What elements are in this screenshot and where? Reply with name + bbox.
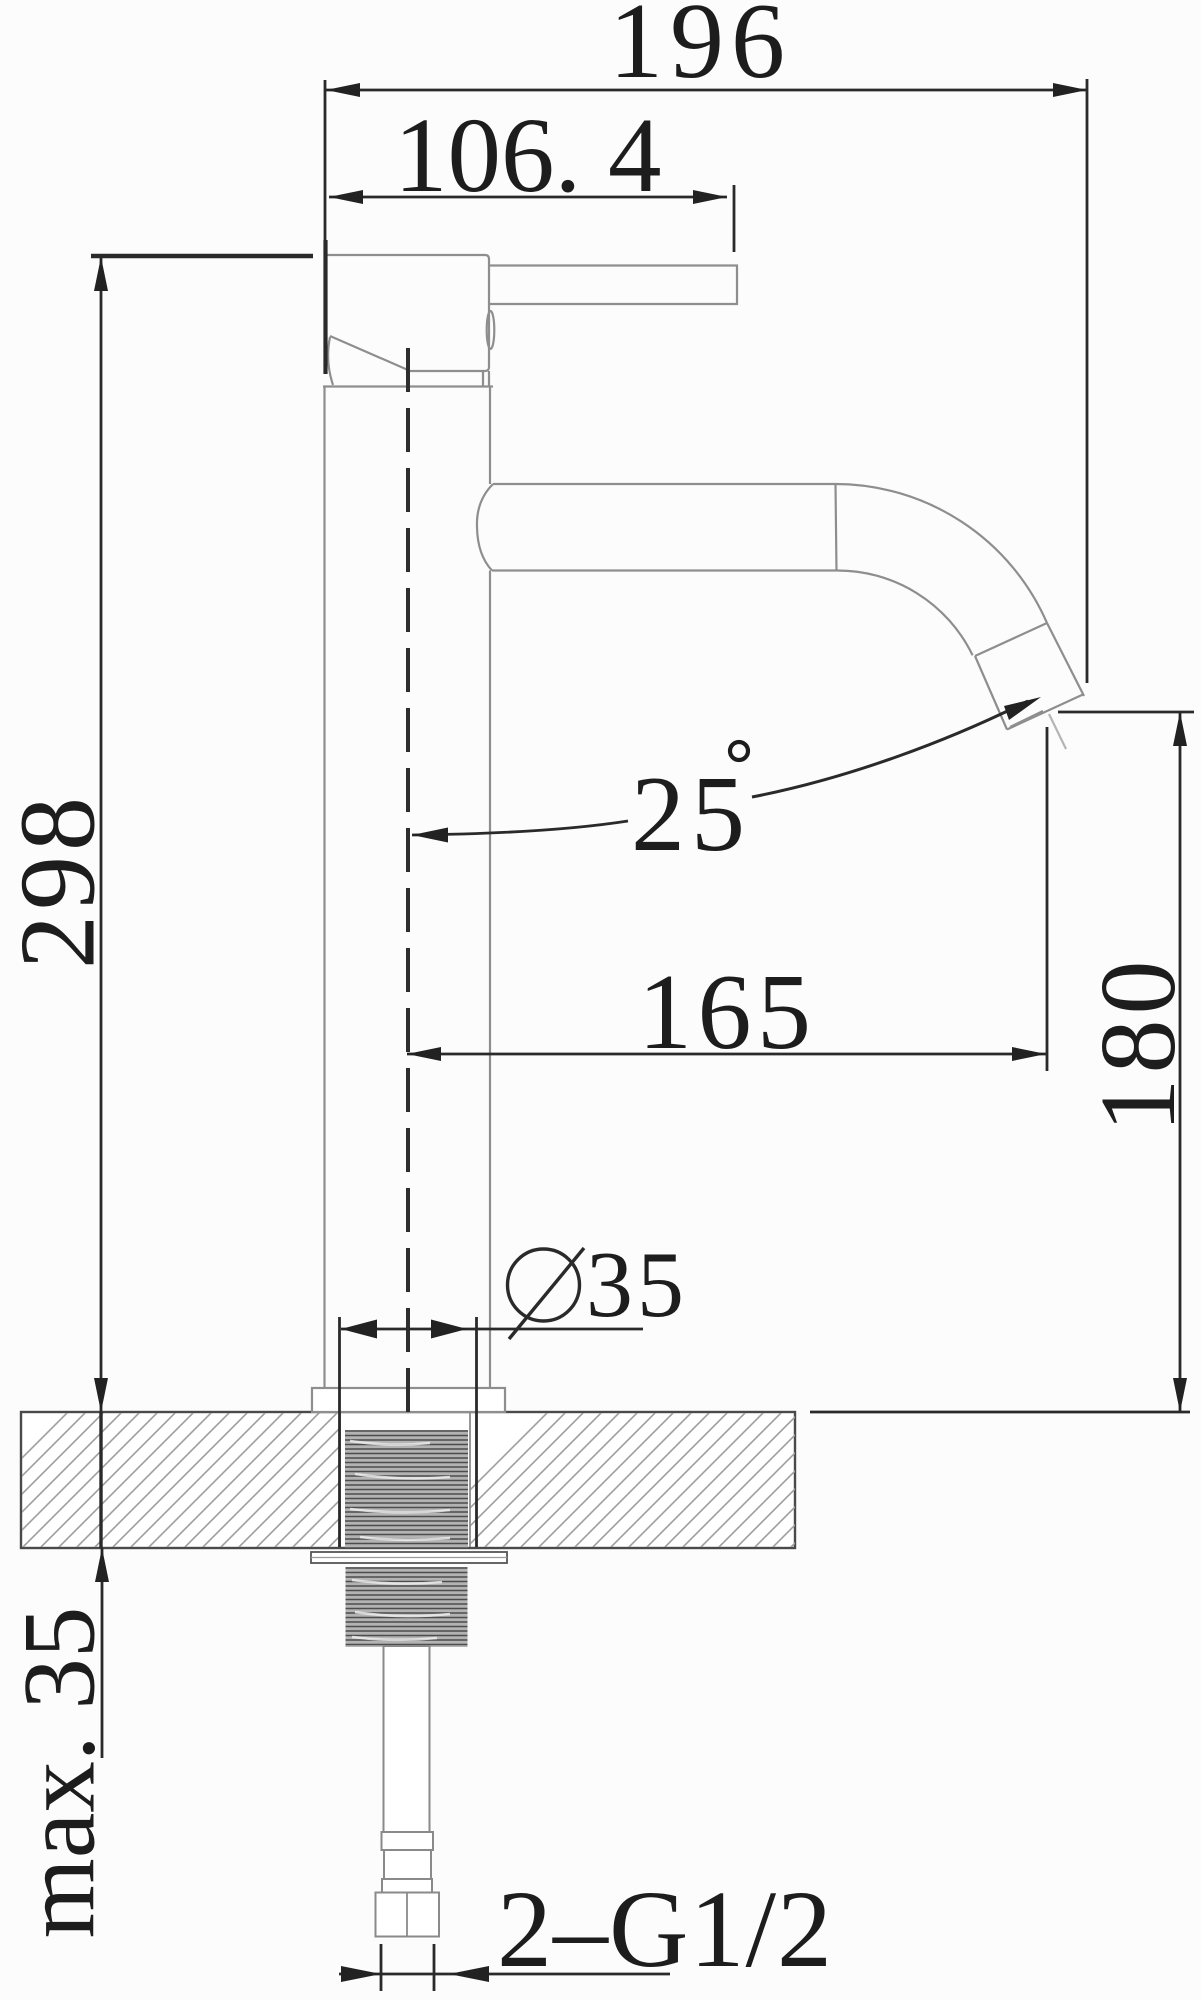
- svg-text:max. 35: max. 35: [3, 1607, 117, 1939]
- svg-text:180: 180: [1079, 956, 1198, 1133]
- svg-text:106. 4: 106. 4: [394, 97, 662, 215]
- svg-text:165: 165: [638, 953, 817, 1072]
- svg-text:25: 25: [631, 755, 751, 874]
- svg-text:196: 196: [609, 0, 792, 101]
- svg-text:298: 298: [0, 792, 118, 969]
- svg-text:2–G1/2: 2–G1/2: [497, 1868, 833, 1990]
- svg-text:35: 35: [586, 1233, 688, 1337]
